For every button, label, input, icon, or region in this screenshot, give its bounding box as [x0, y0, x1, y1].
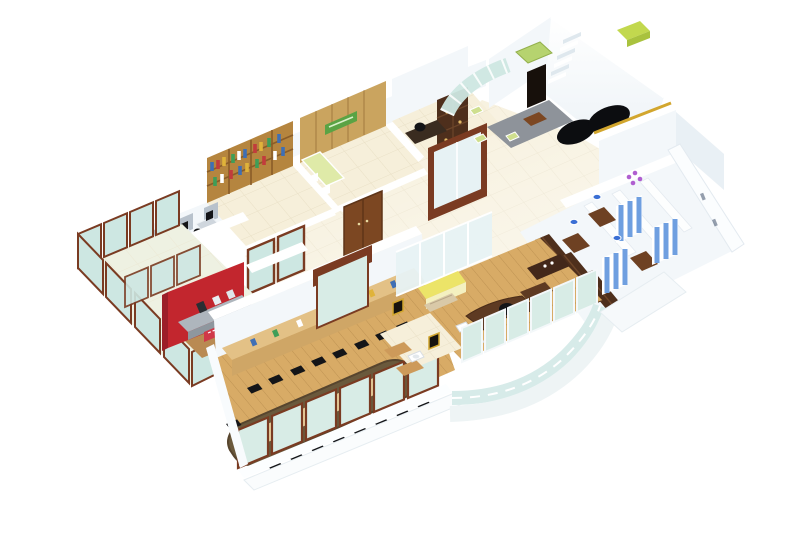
basin — [593, 194, 601, 199]
floorplan-render: 3D isometric office floor plan render — [0, 0, 800, 550]
basin — [613, 235, 621, 240]
basin — [570, 219, 578, 224]
floorplan-svg: 3D isometric office floor plan render — [0, 0, 800, 550]
cabin-chair — [415, 123, 426, 132]
